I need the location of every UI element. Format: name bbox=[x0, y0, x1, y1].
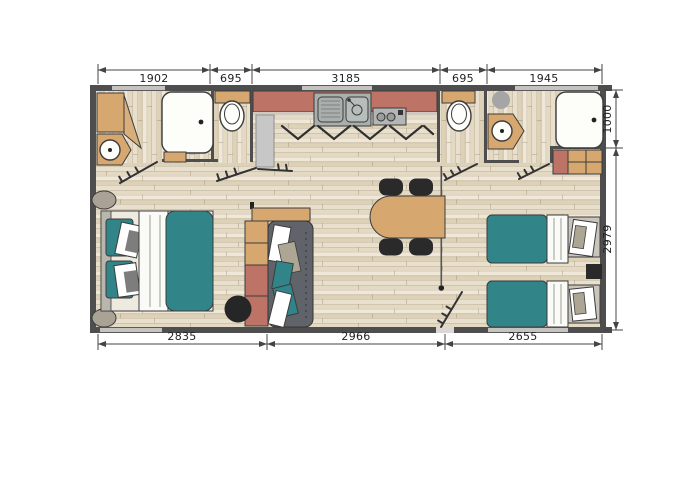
sofa-shelf bbox=[252, 208, 310, 221]
window bbox=[100, 328, 162, 332]
window bbox=[112, 86, 165, 90]
stool bbox=[92, 191, 116, 209]
dimension-label: 1000 bbox=[601, 104, 614, 133]
dimension-label: 1902 bbox=[139, 72, 168, 85]
entrance-door-opening bbox=[436, 327, 454, 333]
dimension-label: 695 bbox=[452, 72, 474, 85]
chair bbox=[379, 179, 403, 196]
twin-bed-2 bbox=[487, 281, 547, 327]
twin-bed-1 bbox=[487, 215, 547, 263]
chair bbox=[409, 239, 433, 256]
bed-sheet bbox=[139, 211, 168, 311]
dimension-label: 2655 bbox=[508, 330, 537, 343]
stool bbox=[92, 309, 116, 327]
dimension-label: 3185 bbox=[331, 72, 360, 85]
window bbox=[515, 86, 598, 90]
dining-table bbox=[370, 196, 445, 238]
round-side-table bbox=[225, 296, 252, 323]
window bbox=[302, 86, 372, 90]
fridge-column bbox=[256, 115, 274, 167]
wardrobe-left bbox=[97, 93, 124, 132]
dimension-label: 2966 bbox=[341, 330, 370, 343]
dimension-label: 2979 bbox=[601, 224, 614, 253]
nightstand bbox=[586, 264, 602, 279]
floorplan-canvas: 1902 695 3185 695 1945 2835 2966 2655 10… bbox=[0, 0, 700, 500]
bedroom-master bbox=[92, 191, 213, 327]
toilet-left-icon bbox=[220, 101, 244, 131]
shower-step bbox=[164, 152, 186, 162]
dimension-label: 1945 bbox=[529, 72, 558, 85]
dimension-label: 2835 bbox=[167, 330, 196, 343]
duvet bbox=[166, 211, 213, 311]
dimension-label: 695 bbox=[220, 72, 242, 85]
water-heater-icon bbox=[492, 91, 510, 109]
chair bbox=[409, 179, 433, 196]
shower-left-icon bbox=[162, 92, 213, 153]
toilet-center-icon bbox=[447, 101, 471, 131]
floorplan: 1902 695 3185 695 1945 2835 2966 2655 10… bbox=[0, 0, 700, 500]
chair bbox=[379, 239, 403, 256]
